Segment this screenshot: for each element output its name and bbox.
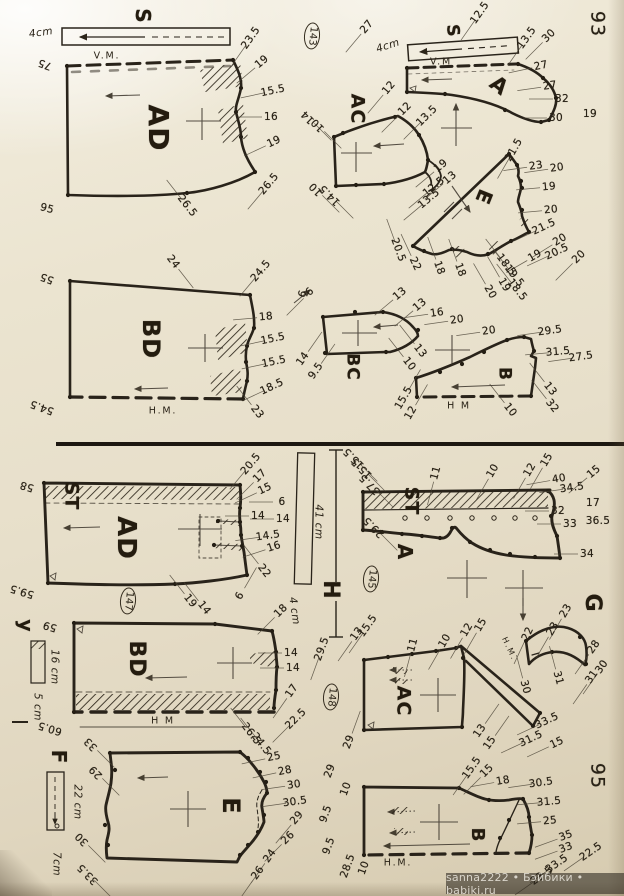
fold-line-hm-3: H M — [151, 716, 175, 726]
label-y: y — [16, 619, 35, 632]
scale-5cm: 5 cm — [32, 693, 43, 721]
piece-bd-top: BD — [139, 319, 163, 359]
piece-b-top: B — [496, 367, 513, 381]
label-f: F — [49, 750, 69, 765]
page-number-95: 95 — [588, 763, 607, 789]
piece-g: G — [581, 593, 603, 612]
measurement-label: 27 — [533, 59, 549, 72]
measurement-label: 20 — [481, 325, 496, 337]
measurement-label: 31 — [551, 670, 565, 686]
leader-lines — [88, 20, 596, 896]
scanned-pattern-page: SSADBDACAEBCBSTADyBDFESTAHGACB9395143145… — [0, 0, 624, 896]
measurement-label: 20 — [544, 204, 559, 216]
scale-16cm: 16 cm — [49, 649, 60, 684]
piece-a-bottom: A — [395, 544, 415, 560]
measurement-label: 17 — [586, 498, 600, 509]
fold-line-vm-right: V.M — [430, 57, 452, 67]
outline-b-top — [416, 337, 536, 397]
scale-22cm: 22 cm — [72, 784, 83, 819]
label-st-left: ST — [62, 482, 81, 511]
fold-lines — [45, 60, 548, 855]
measurement-label: 30 — [286, 779, 301, 791]
eyelet-row — [403, 516, 537, 520]
fold-line-vm-left: V.M. — [94, 51, 121, 61]
measurement-label: 19 — [583, 109, 597, 120]
measurement-label: 16 — [429, 307, 444, 319]
fold-line-hm-1: H.M. — [149, 406, 177, 416]
fold-line-hm-2: H M — [447, 401, 471, 411]
page-number-93: 93 — [588, 11, 607, 37]
measurement-label: 14 — [286, 663, 300, 674]
measurement-label: 27 — [542, 80, 557, 92]
measurement-label: 28 — [277, 764, 293, 777]
outline-ac-top — [334, 116, 428, 186]
label-h: H — [319, 580, 341, 599]
piece-ad-top: AD — [144, 105, 172, 152]
piece-bc: BC — [344, 353, 361, 380]
measurement-label: 32 — [555, 94, 569, 105]
measurement-label: 14 — [284, 648, 298, 659]
piece-ac-bottom: AC — [394, 686, 413, 717]
measurement-label: 33 — [563, 519, 577, 530]
measurement-label: 30 — [518, 679, 532, 695]
measurement-label: 31.5 — [536, 796, 561, 809]
measurement-label: 32 — [551, 506, 565, 517]
measurement-label: 18 — [259, 311, 274, 323]
piece-ac-top: AC — [348, 94, 367, 125]
measurement-label: 20 — [449, 314, 464, 326]
measurement-label: 23 — [528, 160, 543, 172]
measurement-label: 59 — [42, 619, 58, 633]
piece-ad-bottom: AD — [113, 516, 139, 560]
measurement-label: 34 — [580, 549, 594, 560]
measurement-label: 14 — [251, 511, 265, 522]
measurement-label: 25 — [543, 815, 558, 827]
label-st-right: ST — [402, 487, 421, 516]
measurement-label: 36.5 — [586, 516, 611, 527]
measurement-label: 18 — [495, 775, 511, 788]
measurement-label: 20 — [549, 162, 564, 174]
fold-line-hm-4: H.M. — [384, 858, 412, 868]
label-s-left: S — [133, 8, 153, 23]
watermark: sanna2222 • Бэйбики • babiki.ru — [446, 873, 624, 894]
measurement-label: 16 — [264, 112, 278, 123]
measurement-label: 25 — [266, 750, 282, 763]
measurement-label: 58 — [19, 479, 35, 493]
measurement-label: 6 — [279, 497, 286, 508]
piece-e-bottom: E — [219, 797, 243, 814]
outline-b-bottom-seam — [496, 800, 519, 853]
piece-b-bottom: B — [468, 828, 486, 843]
label-s-right: S — [443, 24, 461, 39]
scale-41cm: 41 cm — [313, 504, 324, 539]
measurement-label: 30 — [549, 113, 563, 124]
measurement-label: 19 — [542, 181, 557, 193]
scale-7cm: 7cm — [51, 852, 62, 876]
piece-bd-bottom: BD — [125, 640, 147, 677]
pattern-drawing — [0, 0, 624, 896]
measurement-label: 14 — [276, 514, 290, 525]
